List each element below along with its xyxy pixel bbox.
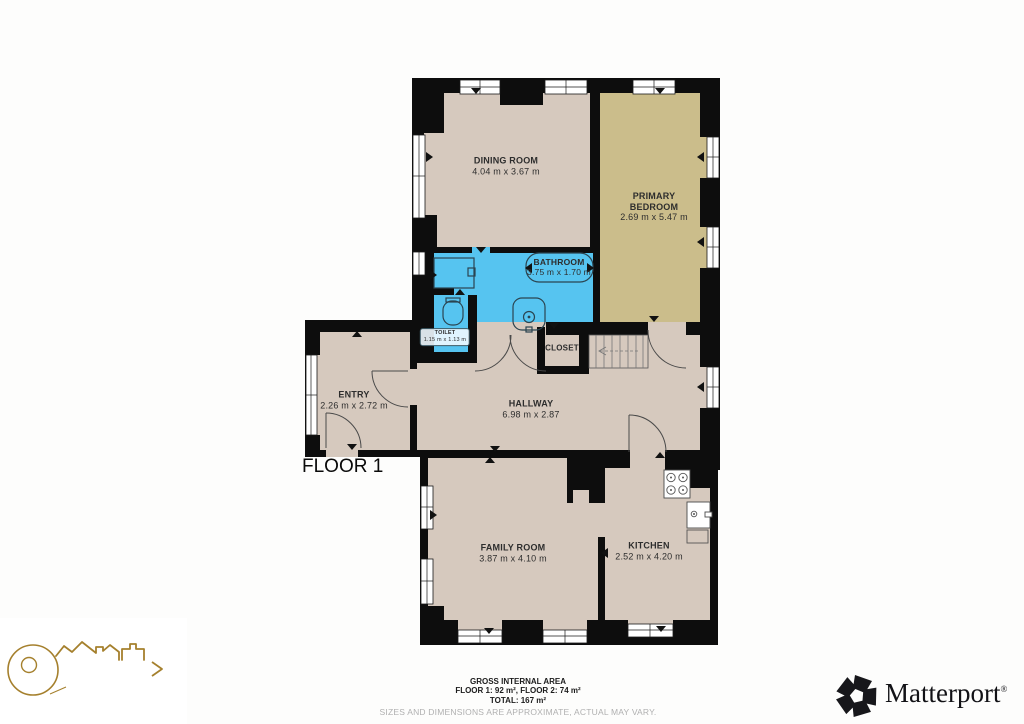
window — [413, 135, 425, 218]
matterport-text: Matterport — [885, 678, 1000, 708]
toilet-dims: 1.15 m x 1.13 m — [424, 337, 466, 344]
room-label-entry: ENTRY 2.26 m x 2.72 m — [320, 389, 388, 410]
matterport-icon — [832, 674, 882, 722]
kitchen-name: KITCHEN — [615, 540, 683, 551]
window — [413, 252, 425, 275]
area-summary: GROSS INTERNAL AREA FLOOR 1: 92 m², FLOO… — [380, 677, 657, 717]
window — [628, 624, 673, 637]
window — [421, 559, 433, 604]
room-label-family-room: FAMILY ROOM 3.87 m x 4.10 m — [479, 542, 547, 563]
closet-name: CLOSET — [545, 343, 579, 352]
window — [306, 355, 317, 435]
toilet-name: TOILET — [424, 330, 466, 337]
floor-title: FLOOR 1 — [302, 456, 383, 478]
window — [543, 630, 587, 643]
family-dims: 3.87 m x 4.10 m — [479, 553, 547, 564]
window — [707, 367, 719, 408]
room-label-bathroom: BATHROOM 3.75 m x 1.70 m — [527, 257, 591, 277]
agency-logo: ŠILHÁNOVÁ invest reality — [0, 618, 187, 724]
disclaimer: SIZES AND DIMENSIONS ARE APPROXIMATE, AC… — [380, 707, 657, 717]
floorplan-page: DINING ROOM 4.04 m x 3.67 m PRIMARY BEDR… — [0, 0, 1024, 724]
window — [460, 80, 500, 94]
room-label-toilet: TOILET 1.15 m x 1.13 m — [420, 328, 470, 346]
dining-name: DINING ROOM — [472, 155, 540, 166]
family-name: FAMILY ROOM — [479, 542, 547, 553]
window — [633, 80, 675, 94]
total-area: TOTAL: 167 m² — [380, 696, 657, 705]
entry-dims: 2.26 m x 2.72 m — [320, 400, 388, 411]
window — [421, 486, 433, 529]
matterport-wordmark: Matterport® — [885, 678, 1007, 709]
entry-name: ENTRY — [320, 389, 388, 400]
bedroom-name: PRIMARY BEDROOM — [619, 191, 689, 212]
room-label-primary-bedroom: PRIMARY BEDROOM 2.69 m x 5.47 m — [619, 191, 689, 223]
registered-mark: ® — [1000, 684, 1007, 694]
room-label-closet: CLOSET — [545, 343, 579, 352]
bathroom-name: BATHROOM — [527, 257, 591, 267]
hallway-name: HALLWAY — [502, 398, 559, 409]
window — [707, 137, 719, 178]
window — [707, 227, 719, 268]
stove — [664, 470, 690, 498]
bedroom-dims: 2.69 m x 5.47 m — [619, 212, 689, 223]
kitchen-dims: 2.52 m x 4.20 m — [615, 551, 683, 562]
window — [545, 80, 587, 94]
room-label-kitchen: KITCHEN 2.52 m x 4.20 m — [615, 540, 683, 561]
window — [458, 630, 502, 643]
dining-dims: 4.04 m x 3.67 m — [472, 166, 540, 177]
floor-areas: FLOOR 1: 92 m², FLOOR 2: 74 m² — [380, 686, 657, 695]
gross-internal-area-title: GROSS INTERNAL AREA — [380, 677, 657, 686]
bathroom-dims: 3.75 m x 1.70 m — [527, 267, 591, 277]
hallway-dims: 6.98 m x 2.87 — [502, 409, 559, 420]
floorplan-svg — [0, 0, 1024, 724]
key-house-icon — [6, 632, 176, 710]
room-label-hallway: HALLWAY 6.98 m x 2.87 — [502, 398, 559, 419]
stairs — [589, 335, 648, 368]
room-label-dining: DINING ROOM 4.04 m x 3.67 m — [472, 155, 540, 176]
